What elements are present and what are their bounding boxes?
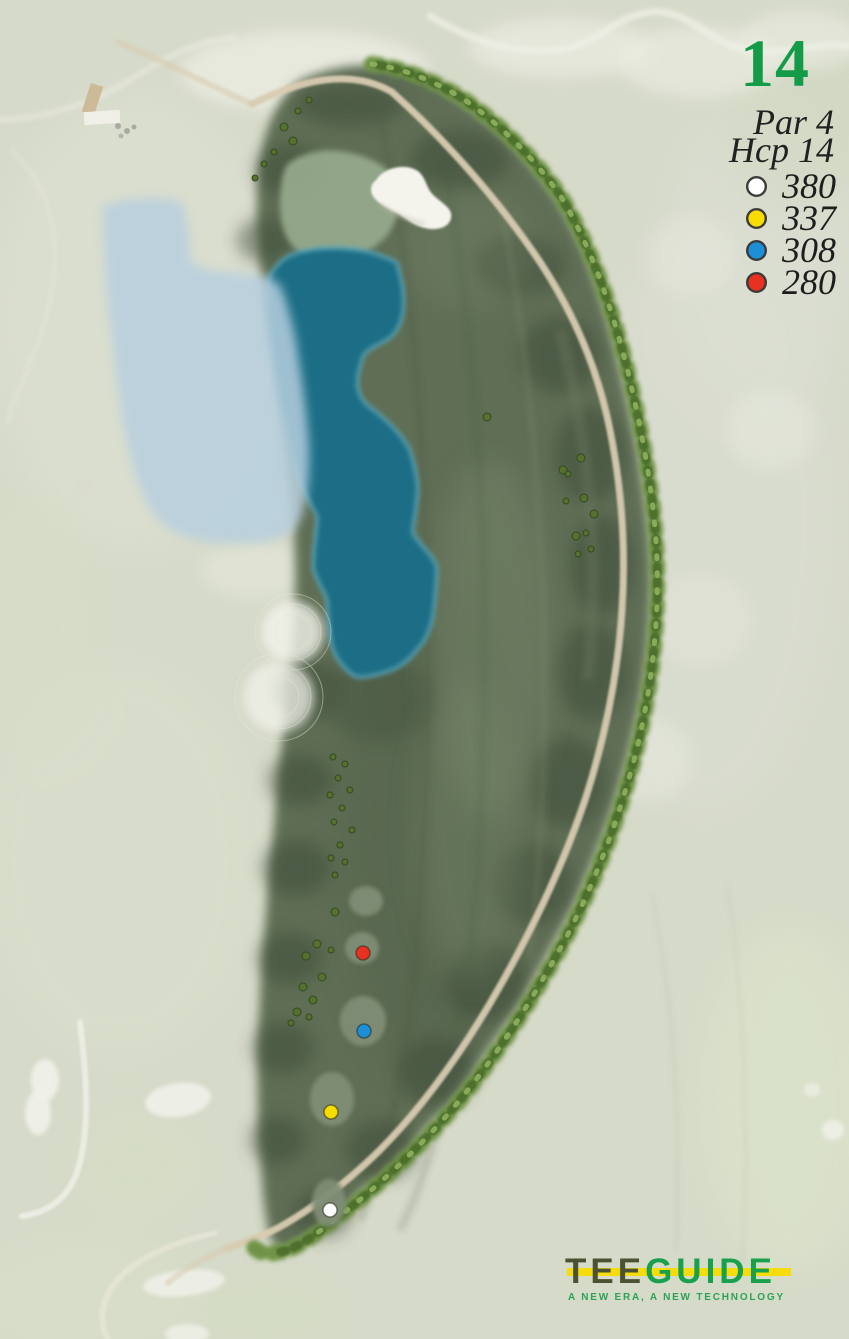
teeguide-logo: TEEGUIDE A NEW ERA, A NEW TECHNOLOGY — [565, 1254, 797, 1303]
red-tee-distance: 280 — [778, 266, 836, 298]
hole-handicap: Hcp 14 — [729, 136, 834, 164]
yellow-tee-marker — [324, 1105, 338, 1119]
red-tee-icon — [745, 271, 768, 294]
teeguide-wordmark: TEEGUIDE — [565, 1254, 797, 1290]
blue-tee-icon — [745, 239, 768, 262]
blue-tee-marker — [357, 1024, 371, 1038]
white-tee-icon — [745, 175, 768, 198]
hole-info-panel: 14 Par 4 Hcp 14 380 337 308 280 — [729, 30, 836, 298]
aerial-hole-map — [0, 0, 849, 1339]
logo-text-tee: TEE — [565, 1252, 645, 1291]
hole-guide-page: 14 Par 4 Hcp 14 380 337 308 280 — [0, 0, 849, 1339]
white-tee-marker — [323, 1203, 337, 1217]
tee-distance-row-red: 280 — [745, 266, 836, 298]
yellow-tee-icon — [745, 207, 768, 230]
logo-text-guide: GUIDE — [645, 1252, 776, 1291]
logo-tagline: A NEW ERA, A NEW TECHNOLOGY — [568, 1292, 797, 1303]
red-tee-marker — [356, 946, 370, 960]
hole-number: 14 — [740, 30, 810, 96]
tee-box-back-extra — [349, 886, 383, 916]
tee-distance-list: 380 337 308 280 — [745, 170, 836, 298]
